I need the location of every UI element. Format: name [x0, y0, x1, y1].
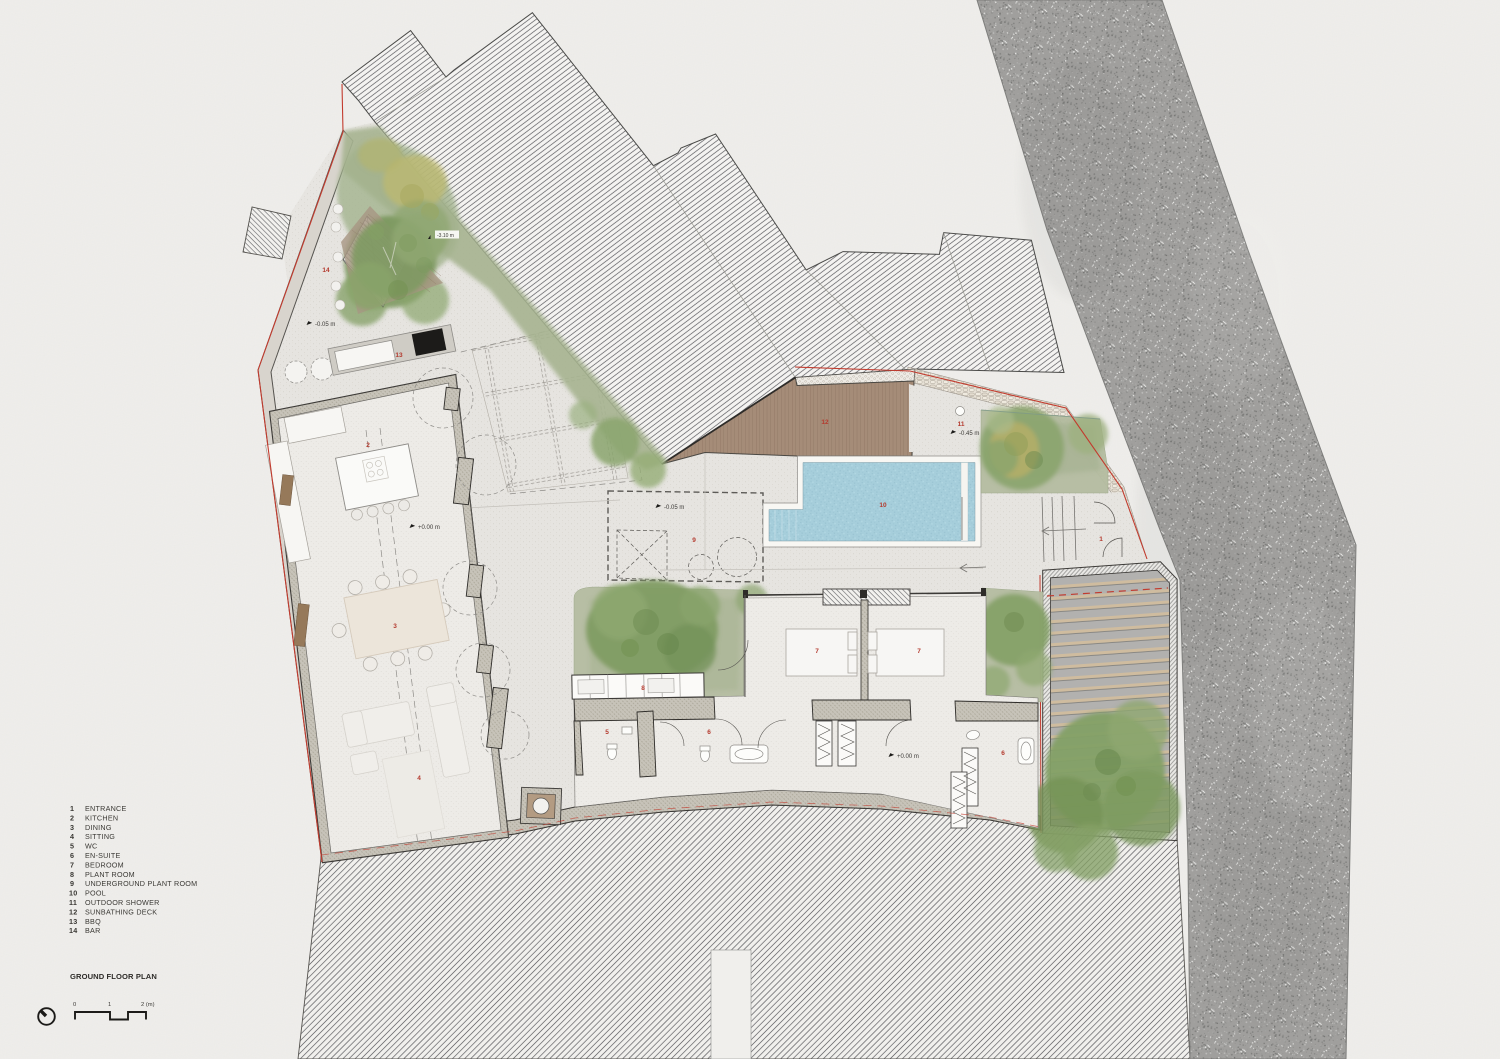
svg-text:8: 8	[70, 870, 74, 879]
svg-text:9: 9	[692, 537, 696, 544]
svg-text:ENTRANCE: ENTRANCE	[85, 804, 127, 813]
svg-text:14: 14	[322, 267, 330, 274]
svg-text:1: 1	[108, 1002, 111, 1008]
svg-text:5: 5	[70, 842, 74, 851]
svg-text:2: 2	[366, 442, 370, 449]
svg-text:6: 6	[70, 851, 74, 860]
svg-text:DINING: DINING	[85, 823, 112, 832]
svg-text:BBQ: BBQ	[85, 917, 101, 926]
svg-text:1: 1	[1099, 536, 1103, 543]
svg-text:13: 13	[69, 917, 78, 926]
svg-text:KITCHEN: KITCHEN	[85, 813, 118, 822]
svg-text:+0.00 m: +0.00 m	[418, 525, 440, 531]
svg-text:-3.10 m: -3.10 m	[437, 233, 454, 239]
svg-text:OUTDOOR SHOWER: OUTDOOR SHOWER	[85, 898, 160, 907]
svg-text:GROUND FLOOR PLAN: GROUND FLOOR PLAN	[70, 972, 157, 981]
svg-text:3: 3	[70, 823, 74, 832]
svg-text:2 (m): 2 (m)	[141, 1002, 155, 1008]
svg-text:2: 2	[70, 813, 74, 822]
svg-text:SUNBATHING DECK: SUNBATHING DECK	[85, 907, 157, 916]
svg-text:10: 10	[69, 889, 78, 898]
svg-text:14: 14	[69, 926, 78, 935]
svg-text:0: 0	[73, 1002, 76, 1008]
svg-text:-0.45 m: -0.45 m	[959, 431, 979, 437]
svg-text:9: 9	[70, 879, 74, 888]
svg-text:EN-SUITE: EN-SUITE	[85, 851, 121, 860]
svg-text:12: 12	[821, 419, 829, 426]
svg-text:12: 12	[69, 907, 78, 916]
svg-text:6: 6	[707, 729, 711, 736]
svg-text:6: 6	[1001, 750, 1005, 757]
svg-text:4: 4	[417, 775, 421, 782]
svg-text:7: 7	[70, 860, 74, 869]
svg-text:3: 3	[393, 623, 397, 630]
svg-text:13: 13	[395, 352, 403, 359]
svg-text:UNDERGROUND PLANT ROOM: UNDERGROUND PLANT ROOM	[85, 879, 197, 888]
svg-text:10: 10	[879, 502, 887, 509]
svg-text:-0.05 m: -0.05 m	[315, 322, 335, 328]
svg-text:PLANT ROOM: PLANT ROOM	[85, 870, 135, 879]
svg-text:7: 7	[815, 648, 819, 655]
svg-text:8: 8	[641, 685, 645, 692]
svg-text:11: 11	[958, 421, 965, 428]
svg-text:SITTING: SITTING	[85, 832, 115, 841]
svg-text:1: 1	[70, 804, 74, 813]
svg-text:+0.00 m: +0.00 m	[897, 754, 919, 760]
svg-text:5: 5	[605, 729, 609, 736]
svg-text:BAR: BAR	[85, 926, 101, 935]
svg-text:BEDROOM: BEDROOM	[85, 860, 124, 869]
svg-text:WC: WC	[85, 842, 97, 851]
svg-text:7: 7	[917, 648, 921, 655]
svg-text:11: 11	[69, 898, 77, 907]
svg-text:-0.05 m: -0.05 m	[664, 505, 684, 511]
svg-text:4: 4	[70, 832, 74, 841]
svg-text:POOL: POOL	[85, 889, 106, 898]
